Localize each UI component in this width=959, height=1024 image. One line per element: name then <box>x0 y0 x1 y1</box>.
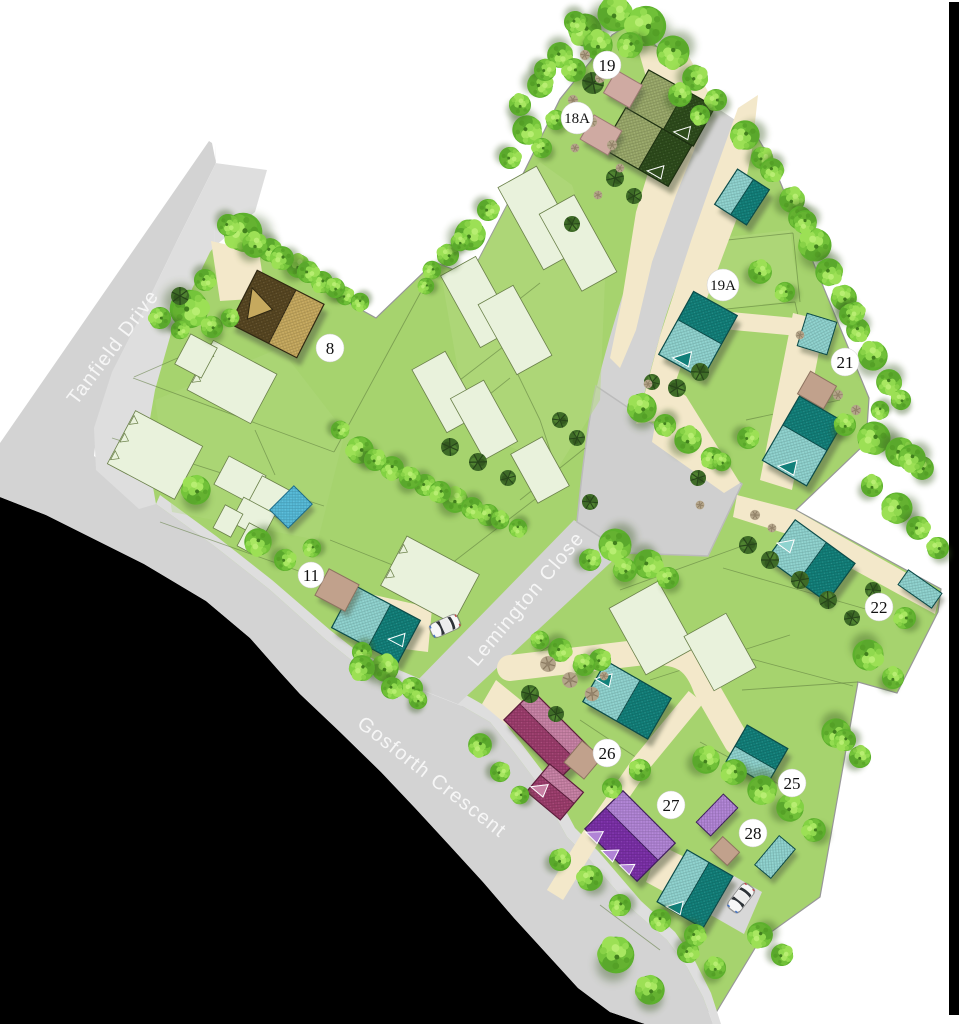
svg-text:18A: 18A <box>564 111 590 127</box>
svg-text:27: 27 <box>663 796 681 815</box>
svg-text:19A: 19A <box>710 278 736 294</box>
svg-text:22: 22 <box>871 598 888 617</box>
svg-text:25: 25 <box>784 774 801 793</box>
svg-text:28: 28 <box>745 824 762 843</box>
svg-text:21: 21 <box>837 353 854 372</box>
svg-text:19: 19 <box>599 56 616 75</box>
svg-text:26: 26 <box>599 744 616 763</box>
svg-text:11: 11 <box>303 566 319 585</box>
svg-text:8: 8 <box>326 339 335 358</box>
